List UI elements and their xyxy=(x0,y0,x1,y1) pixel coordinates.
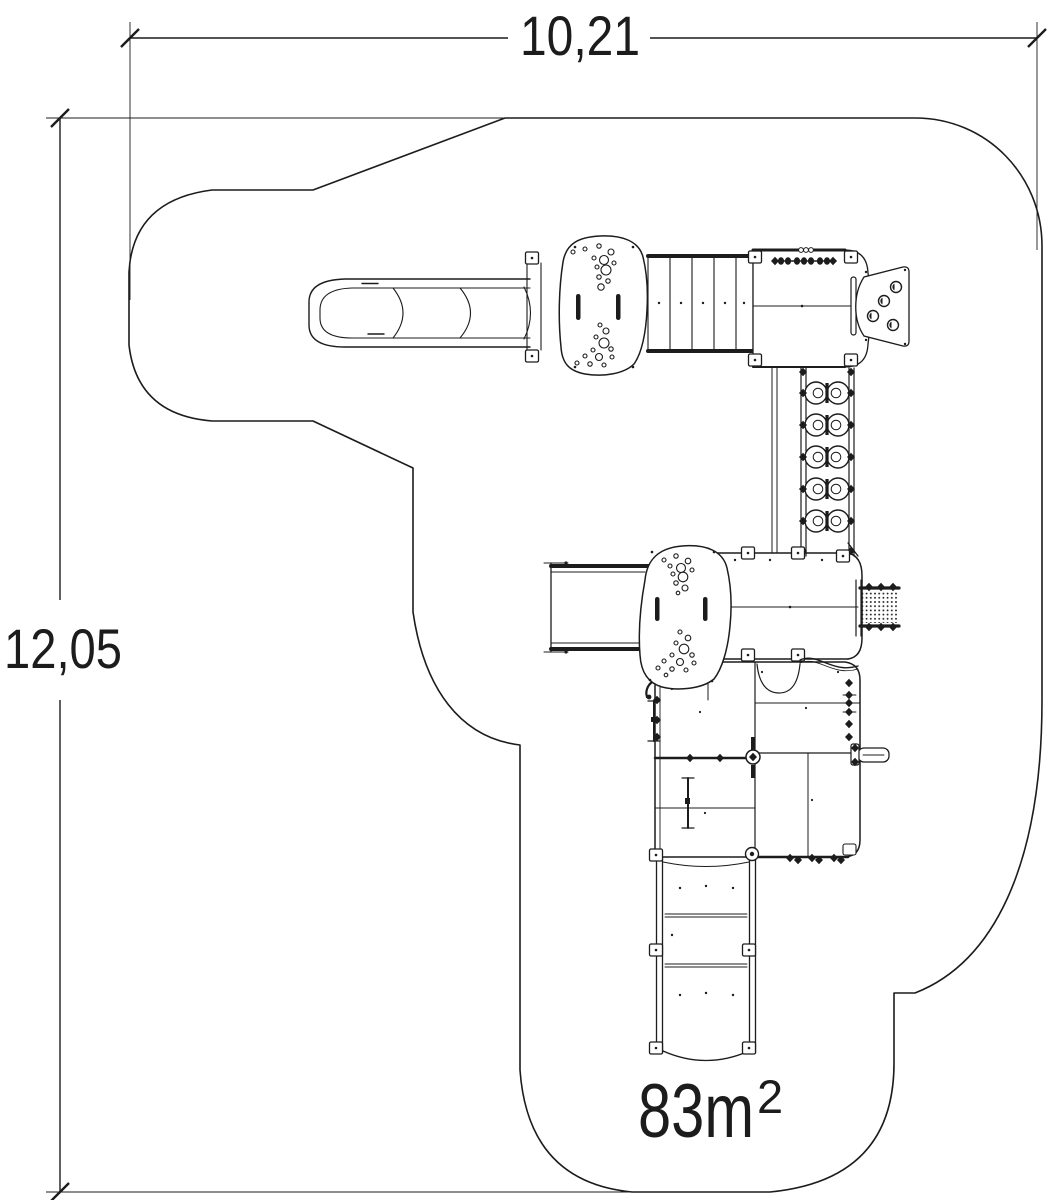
plan-drawing: 10,21 12,05 83m 2 xyxy=(0,0,1056,1200)
rung-ladder xyxy=(799,368,858,556)
area-exponent: 2 xyxy=(757,1070,783,1123)
height-dimension-label: 12,05 xyxy=(4,617,122,680)
area-value: 83m xyxy=(638,1069,754,1154)
platform-top xyxy=(559,236,647,375)
climbing-net xyxy=(856,580,899,636)
tower-deck xyxy=(749,248,873,367)
width-dimension-label: 10,21 xyxy=(520,4,640,67)
platform-middle xyxy=(639,546,731,689)
climbing-wall xyxy=(856,267,909,346)
plan-page: 10,21 12,05 83m 2 xyxy=(0,0,1056,1200)
